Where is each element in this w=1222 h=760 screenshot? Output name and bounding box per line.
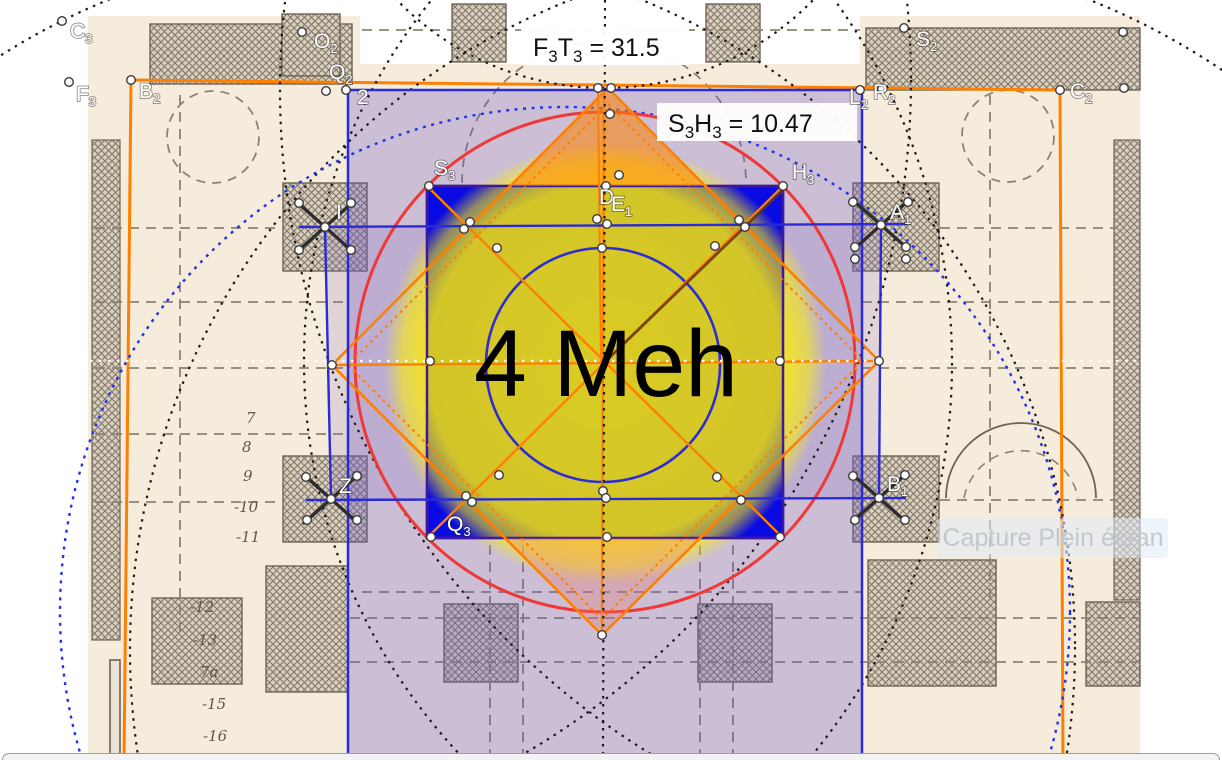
construction-point[interactable] <box>495 471 504 480</box>
construction-point[interactable] <box>426 357 435 366</box>
center-area-text[interactable]: 4 Meh <box>474 311 738 417</box>
plan-number: -11 <box>236 528 260 546</box>
construction-point[interactable] <box>602 494 611 503</box>
construction-point[interactable] <box>460 225 469 234</box>
capture-fullscreen-button[interactable]: Capture Plein écran <box>938 518 1168 558</box>
construction-point[interactable] <box>594 84 603 93</box>
construction-point[interactable] <box>1056 86 1065 95</box>
plan-wall-left <box>92 140 120 640</box>
construction-point[interactable] <box>776 357 785 366</box>
construction-point[interactable] <box>1120 84 1129 93</box>
plan-number: -16 <box>203 727 228 745</box>
plan-number: 8 <box>242 438 252 456</box>
construction-point[interactable] <box>711 242 720 251</box>
plan-wing-top-right <box>866 28 1140 90</box>
construction-point[interactable] <box>603 533 612 542</box>
construction-point[interactable] <box>900 24 909 33</box>
window-bottom-edge <box>2 753 1220 760</box>
construction-point[interactable] <box>779 182 788 191</box>
construction-point[interactable] <box>606 110 615 119</box>
measurement-label-s3h3[interactable]: S3H3 = 10.47 <box>657 103 857 142</box>
construction-point[interactable] <box>302 473 311 482</box>
construction-point[interactable] <box>901 516 910 525</box>
construction-point[interactable] <box>877 221 886 230</box>
plan-number: -10 <box>234 498 259 516</box>
plan-number: -13 <box>193 631 217 649</box>
construction-point[interactable] <box>347 246 356 255</box>
construction-point[interactable] <box>425 182 434 191</box>
geogebra-canvas: 789-10-11-12-137a-15-16 4 Meh F3T3 = 31.… <box>0 0 1222 760</box>
plan-number: -15 <box>202 695 226 713</box>
construction-point[interactable] <box>127 76 136 85</box>
measurement-label-f3t3[interactable]: F3T3 = 31.5 <box>521 27 689 66</box>
point-label[interactable]: I <box>336 201 342 224</box>
construction-point[interactable] <box>58 17 67 26</box>
plan-pier-se-low <box>868 560 996 686</box>
construction-svg: 789-10-11-12-137a-15-16 4 Meh F3T3 = 31.… <box>0 0 1222 760</box>
construction-point[interactable] <box>737 496 746 505</box>
construction-point[interactable] <box>851 255 860 264</box>
construction-point[interactable] <box>295 246 304 255</box>
construction-point[interactable] <box>713 473 722 482</box>
construction-point[interactable] <box>875 357 884 366</box>
plan-number: -12 <box>190 598 214 616</box>
construction-point[interactable] <box>603 220 612 229</box>
construction-point[interactable] <box>298 28 307 37</box>
construction-point[interactable] <box>427 533 436 542</box>
construction-point[interactable] <box>65 78 74 87</box>
construction-point[interactable] <box>1119 28 1128 37</box>
plan-number: 7 <box>246 409 256 427</box>
construction-point[interactable] <box>303 516 312 525</box>
point-label[interactable]: 2 <box>357 86 369 109</box>
construction-point[interactable] <box>347 199 356 208</box>
construction-point[interactable] <box>493 244 502 253</box>
construction-point[interactable] <box>849 198 858 207</box>
construction-point[interactable] <box>904 198 913 207</box>
construction-point[interactable] <box>327 495 336 504</box>
construction-point[interactable] <box>598 631 607 640</box>
construction-point[interactable] <box>902 243 911 252</box>
plan-wall-left-low <box>110 660 120 760</box>
plan-pier-sw-low <box>266 566 348 692</box>
construction-point[interactable] <box>902 255 911 264</box>
plan-number: 9 <box>243 467 253 485</box>
construction-point[interactable] <box>851 243 860 252</box>
construction-point[interactable] <box>741 223 750 232</box>
construction-point[interactable] <box>593 215 602 224</box>
construction-point[interactable] <box>322 87 331 96</box>
construction-point[interactable] <box>295 199 304 208</box>
construction-point[interactable] <box>875 494 884 503</box>
construction-point[interactable] <box>849 472 858 481</box>
construction-point[interactable] <box>615 171 624 180</box>
construction-point[interactable] <box>468 498 477 507</box>
construction-point[interactable] <box>353 516 362 525</box>
construction-point[interactable] <box>901 471 910 480</box>
construction-point[interactable] <box>328 361 337 370</box>
plan-number: 7a <box>200 663 219 681</box>
construction-point[interactable] <box>353 472 362 481</box>
construction-point[interactable] <box>851 516 860 525</box>
construction-point[interactable] <box>776 533 785 542</box>
point-label[interactable]: Z <box>339 475 352 498</box>
construction-point[interactable] <box>598 244 607 253</box>
plan-courtyard-pier-right <box>706 4 760 62</box>
plan-pier-bottom-right <box>1086 602 1140 686</box>
capture-fullscreen-label: Capture Plein écran <box>943 524 1164 552</box>
construction-point[interactable] <box>607 84 616 93</box>
construction-point[interactable] <box>321 223 330 232</box>
